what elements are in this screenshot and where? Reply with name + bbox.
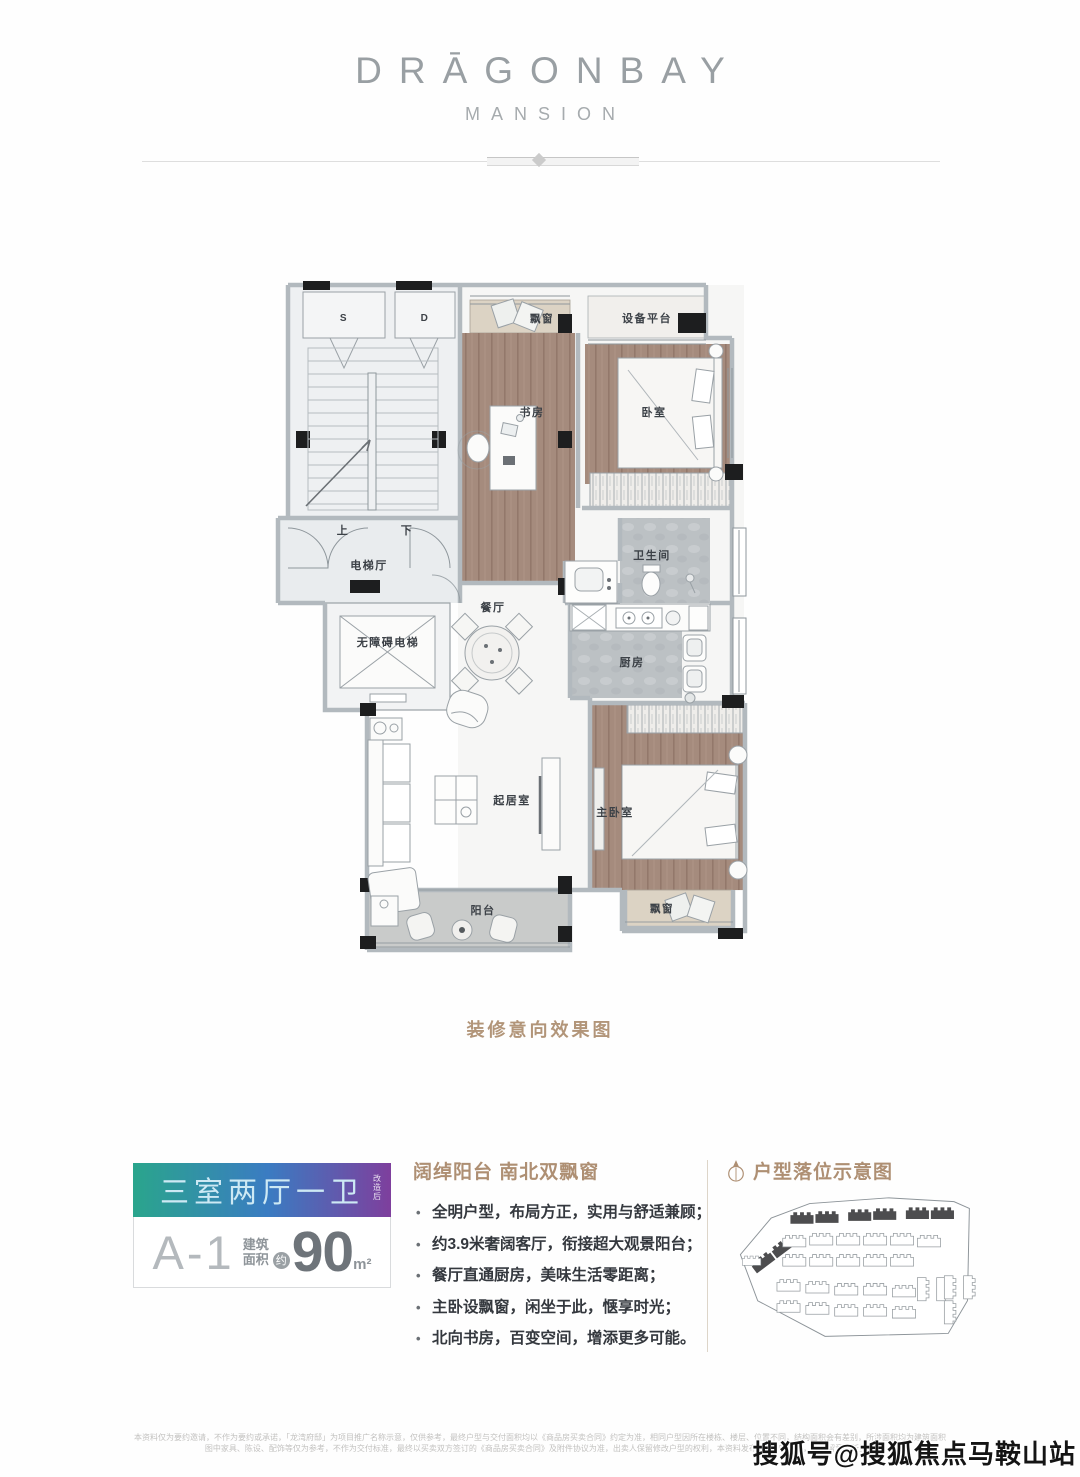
floor-plan: S D 上 下 电梯厅 无障碍电梯 飘窗 设备平台 书房 卧室 卫生间 餐厅 厨… xyxy=(270,278,760,978)
room-label-kitchen: 厨房 xyxy=(620,655,645,669)
brand-logo: DRĀGONBAY xyxy=(0,50,1080,92)
room-label-equipment: 设备平台 xyxy=(622,311,672,325)
siteplan-map xyxy=(726,1193,978,1345)
area-prefix-line2: 面积 xyxy=(243,1252,269,1267)
room-label-elevator-hall: 电梯厅 xyxy=(350,558,388,572)
area-unit: m² xyxy=(353,1256,371,1273)
approx-circle: 约 xyxy=(273,1252,290,1269)
area-value: 90 xyxy=(292,1219,353,1285)
brand-logo-sub: MANSION xyxy=(0,104,1080,125)
room-label-master: 主卧室 xyxy=(596,805,634,819)
header-divider-center xyxy=(487,157,639,166)
compass-icon xyxy=(726,1159,746,1183)
room-label-bay-top: 飘窗 xyxy=(530,312,554,325)
room-label-dining: 餐厅 xyxy=(480,600,506,614)
room-label-balcony: 阳台 xyxy=(471,903,496,917)
room-label-living: 起居室 xyxy=(492,793,531,807)
room-label-down: 下 xyxy=(401,524,414,537)
unit-type-note: 改造后 xyxy=(373,1174,384,1201)
area-prefix-line1: 建筑 xyxy=(243,1237,269,1252)
room-label-bay-bottom: 飘窗 xyxy=(650,902,674,915)
room-label-d: D xyxy=(421,313,430,324)
feature-item: 约3.9米奢阔客厅，衔接超大观景阳台； xyxy=(413,1229,707,1261)
unit-badge: 三室两厅一卫 改造后 A-1 建筑 面积 约 90 m² xyxy=(133,1163,391,1288)
room-label-up: 上 xyxy=(337,523,350,537)
unit-type-label: 三室两厅一卫 xyxy=(160,1169,364,1211)
room-label-accessible-elevator: 无障碍电梯 xyxy=(356,635,420,649)
feature-item: 餐厅直通厨房，美味生活零距离； xyxy=(413,1260,707,1292)
watermark: 搜狐号@搜狐焦点马鞍山站 xyxy=(753,1434,1076,1471)
unit-type-bar: 三室两厅一卫 改造后 xyxy=(133,1163,391,1217)
bedroom-furniture xyxy=(618,344,723,481)
features-list: 全明户型，布局方正，实用与舒适兼顾； 约3.9米奢阔客厅，衔接超大观景阳台； 餐… xyxy=(413,1197,707,1355)
room-label-s: S xyxy=(340,313,348,324)
feature-item: 全明户型，布局方正，实用与舒适兼顾； xyxy=(413,1197,707,1229)
features-title: 阔绰阳台 南北双飘窗 xyxy=(413,1157,707,1184)
siteplan-title: 户型落位示意图 xyxy=(753,1157,893,1184)
room-label-bath: 卫生间 xyxy=(633,548,671,562)
feature-item: 北向书房，百变空间，增添更多可能。 xyxy=(413,1323,707,1355)
siteplan-section: 户型落位示意图 xyxy=(726,1157,978,1350)
room-label-study: 书房 xyxy=(520,405,545,419)
unit-area-bar: A-1 建筑 面积 约 90 m² xyxy=(133,1217,391,1288)
flyer-page: DRĀGONBAY MANSION xyxy=(0,0,1080,1477)
room-label-bedroom: 卧室 xyxy=(642,405,667,419)
floorplan-caption: 装修意向效果图 xyxy=(0,1016,1080,1042)
section-divider xyxy=(707,1160,708,1352)
area-prefix: 建筑 面积 xyxy=(243,1237,269,1267)
unit-code: A-1 xyxy=(153,1225,235,1280)
features-section: 阔绰阳台 南北双飘窗 全明户型，布局方正，实用与舒适兼顾； 约3.9米奢阔客厅，… xyxy=(413,1157,707,1355)
feature-item: 主卧设飘窗，闲坐于此，惬享时光； xyxy=(413,1292,707,1324)
